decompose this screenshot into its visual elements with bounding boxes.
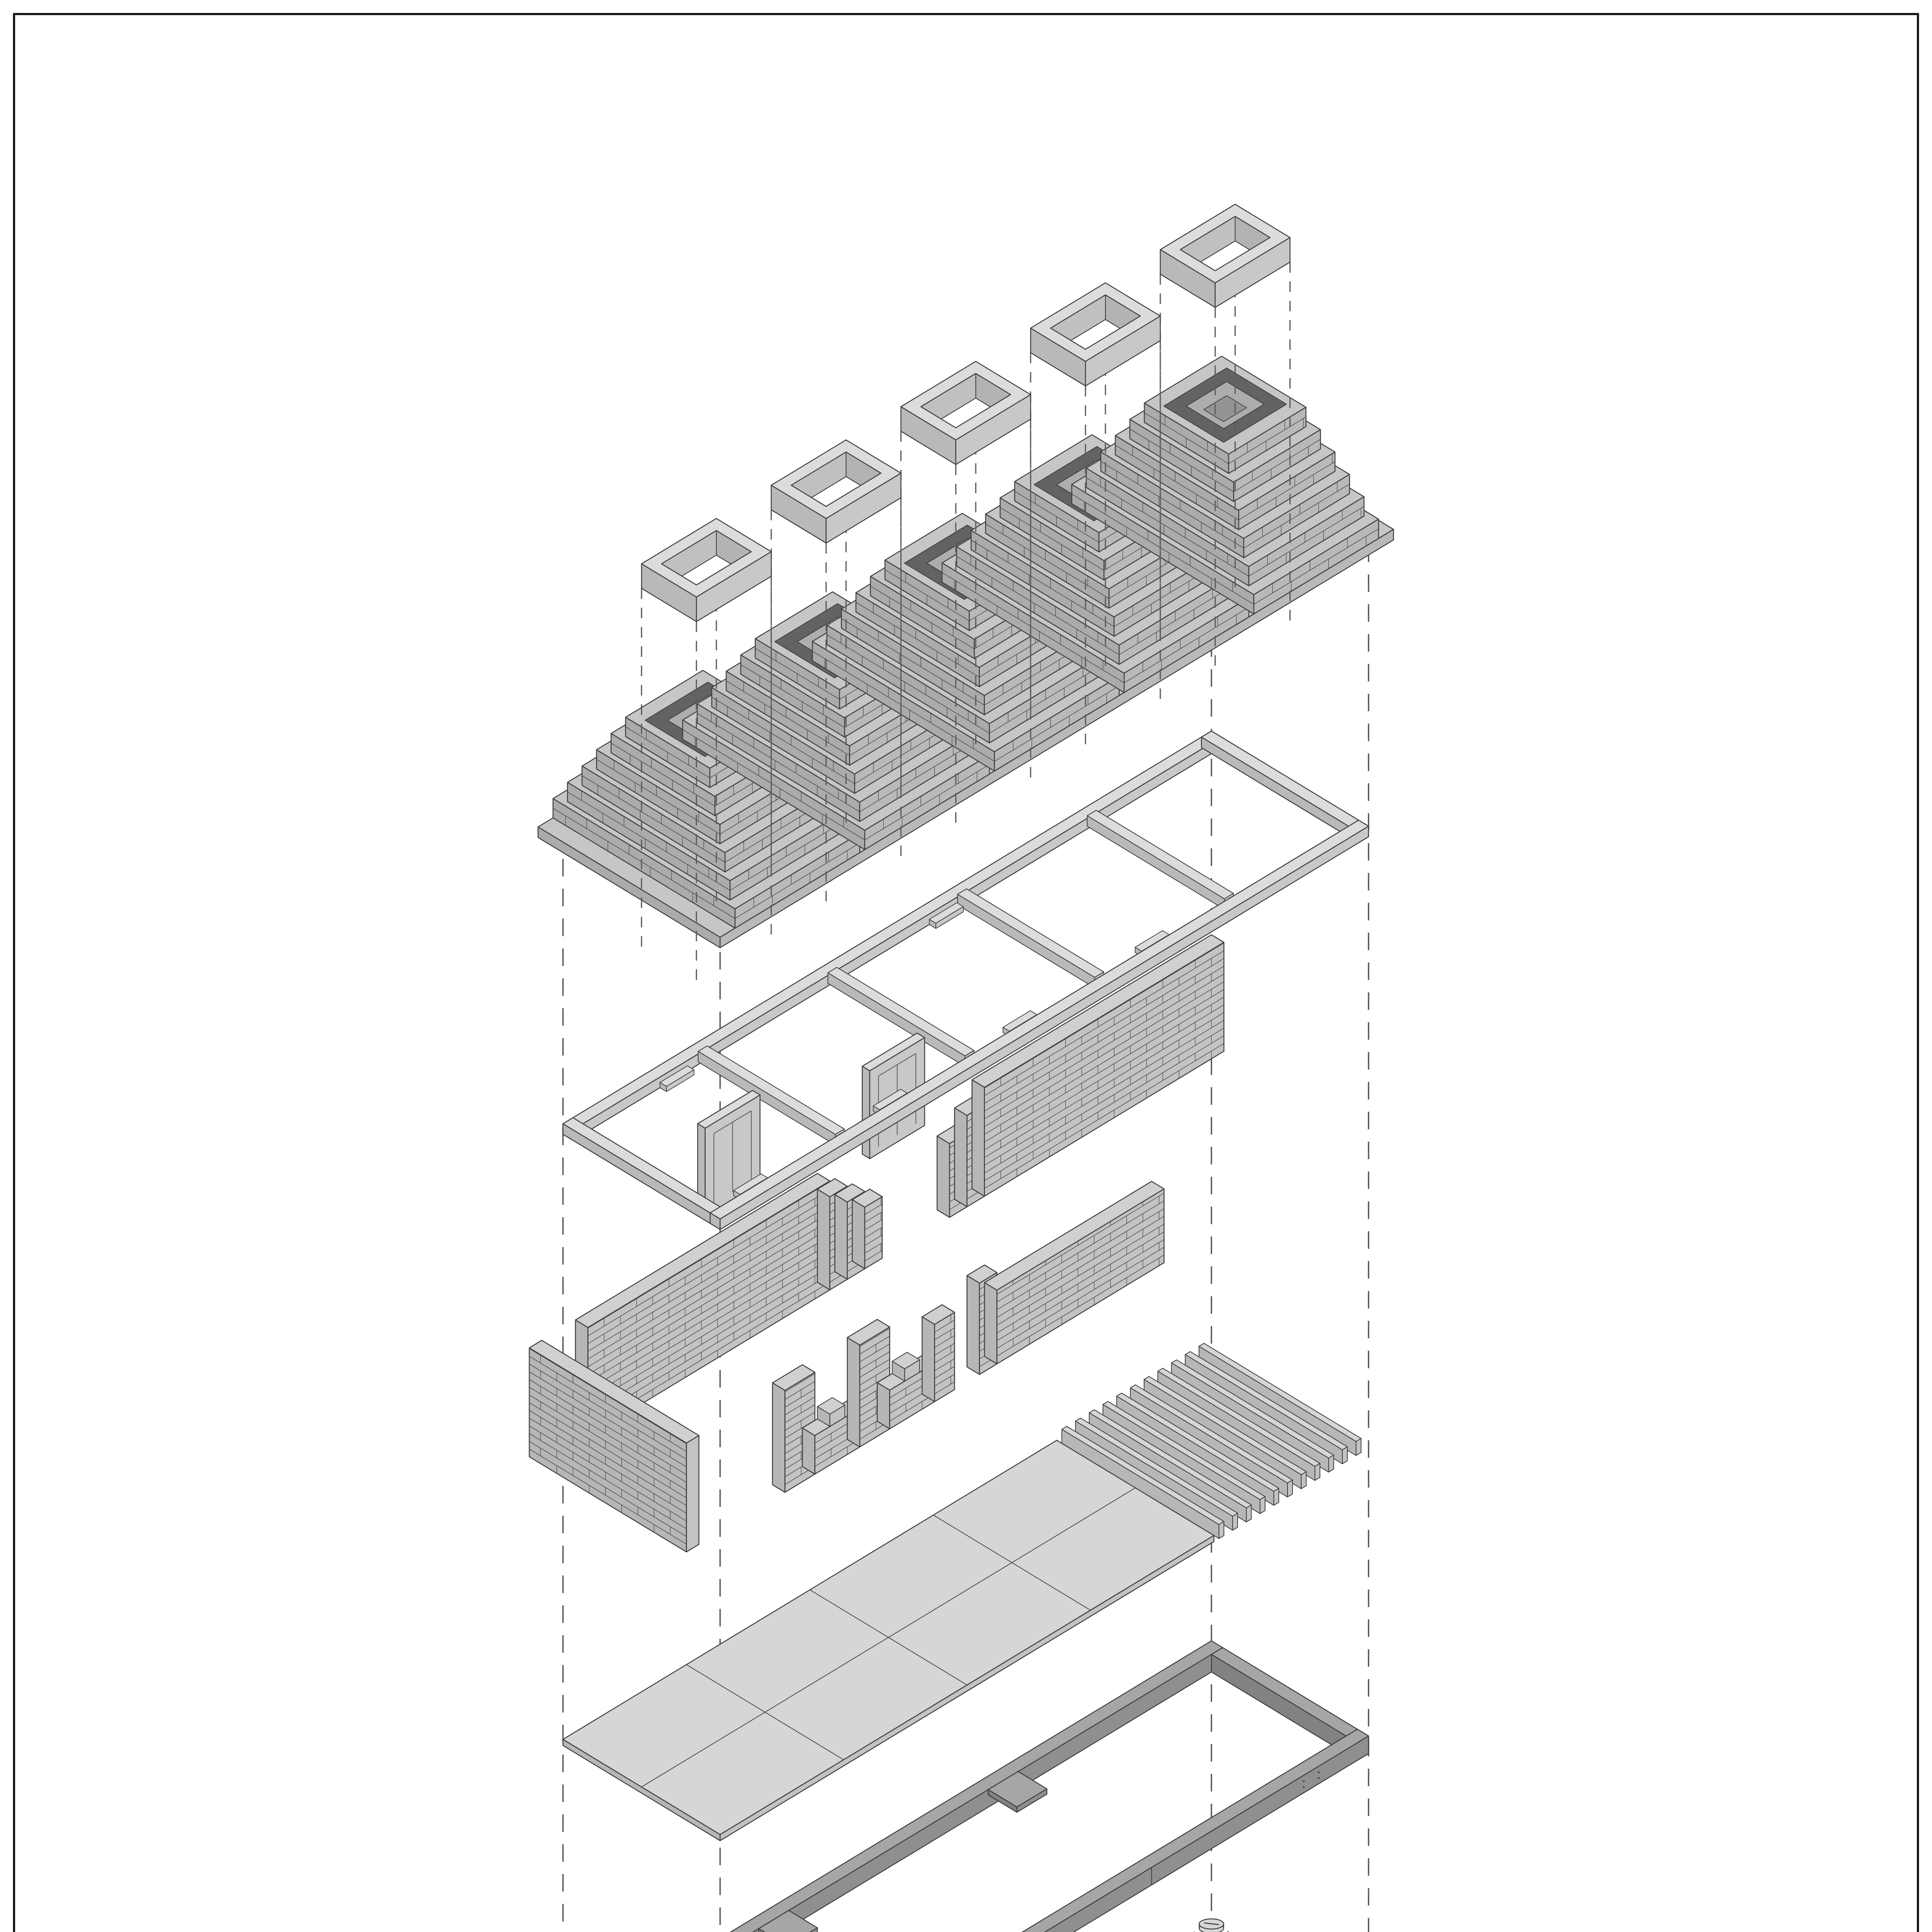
exploded-axonometric-drawing [0,0,1932,1932]
drawing-sheet [0,0,1932,1932]
ground-screw-piles [551,1919,1381,1932]
floor-deck [563,1343,1361,1840]
